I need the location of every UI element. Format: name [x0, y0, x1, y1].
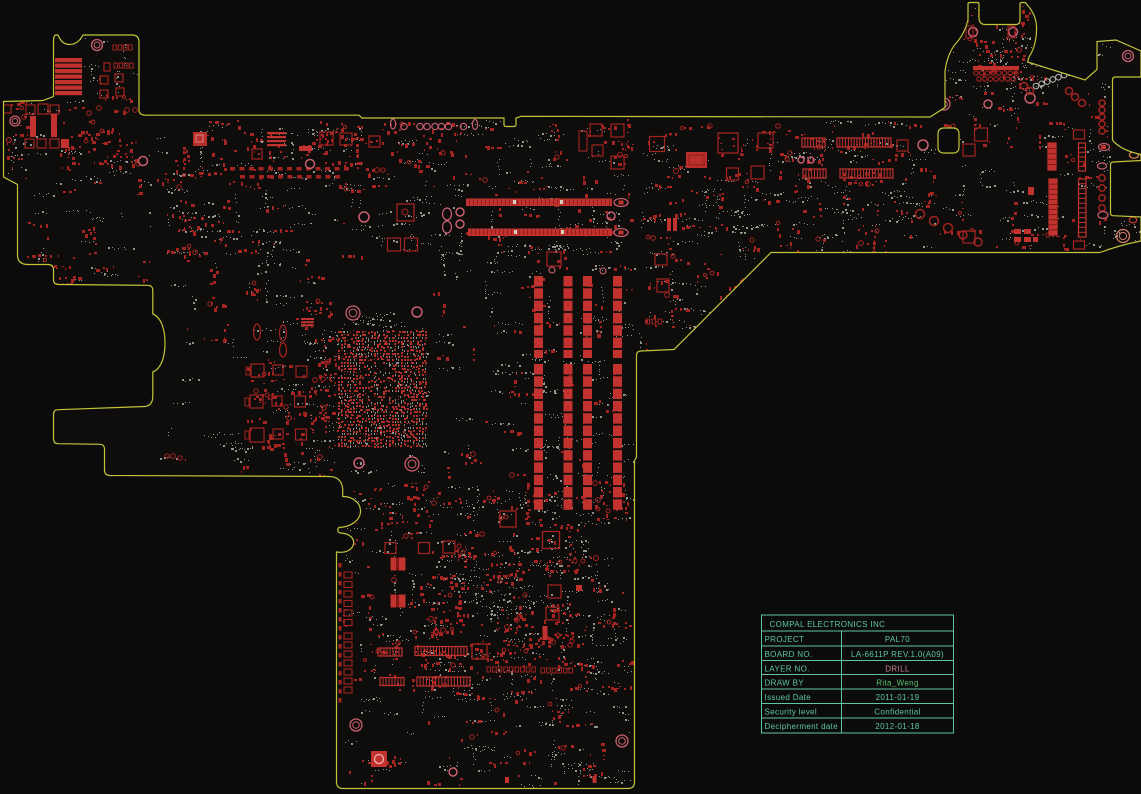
svg-text:LA-6611P REV.1.0(A09): LA-6611P REV.1.0(A09): [851, 650, 944, 659]
svg-text:Confidential: Confidential: [874, 708, 920, 717]
svg-text:PROJECT: PROJECT: [765, 635, 805, 644]
svg-text:COMPAL ELECTRONICS INC: COMPAL ELECTRONICS INC: [770, 620, 886, 629]
svg-text:2011-01-19: 2011-01-19: [876, 693, 920, 702]
svg-text:DRILL: DRILL: [885, 665, 910, 674]
svg-text:BOARD NO.: BOARD NO.: [765, 650, 813, 659]
svg-text:Security level: Security level: [765, 708, 817, 717]
svg-text:Rita_Weng: Rita_Weng: [876, 679, 919, 688]
svg-text:DRAW BY: DRAW BY: [765, 679, 805, 688]
svg-text:Decipherment date: Decipherment date: [765, 722, 839, 731]
svg-text:Issued Date: Issued Date: [765, 693, 812, 702]
svg-text:2012-01-18: 2012-01-18: [875, 722, 920, 731]
svg-text:LAYER NO.: LAYER NO.: [765, 665, 810, 674]
svg-text:PAL70: PAL70: [885, 635, 910, 644]
